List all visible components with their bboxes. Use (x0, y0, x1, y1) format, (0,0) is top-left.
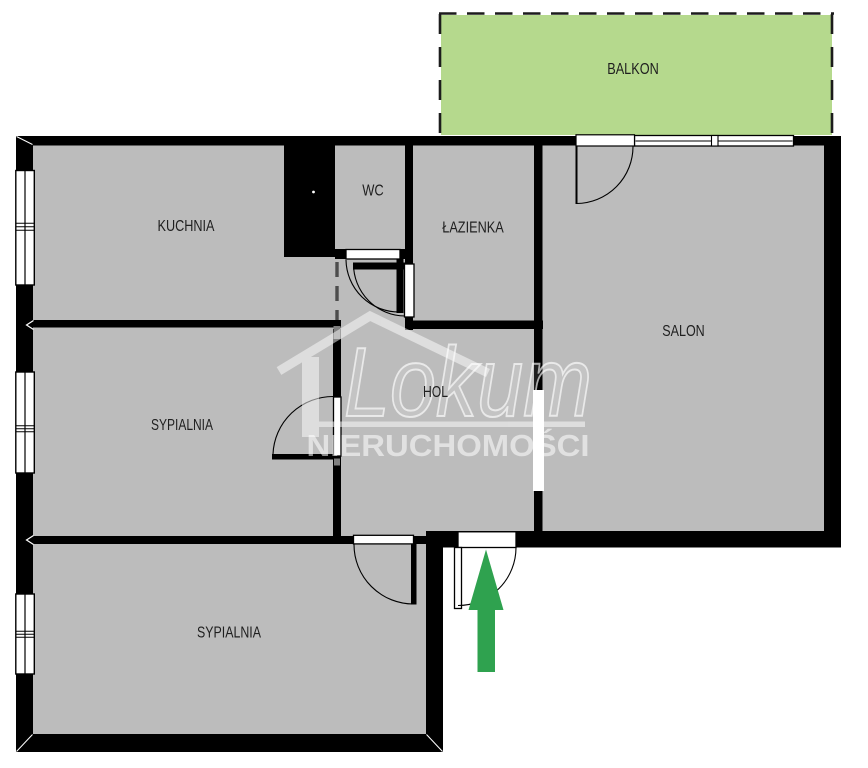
svg-text:ŁAZIENKA: ŁAZIENKA (442, 220, 504, 237)
svg-text:KUCHNIA: KUCHNIA (158, 218, 216, 235)
svg-text:Lokum: Lokum (344, 327, 592, 437)
svg-text:SALON: SALON (662, 323, 705, 340)
svg-text:NIERUCHOMOŚCI: NIERUCHOMOŚCI (307, 427, 590, 463)
svg-text:WC: WC (362, 183, 384, 200)
svg-text:HOL: HOL (423, 384, 448, 401)
svg-text:SYPIALNIA: SYPIALNIA (151, 417, 214, 434)
svg-text:BALKON: BALKON (607, 61, 659, 78)
svg-text:SYPIALNIA: SYPIALNIA (197, 625, 262, 642)
